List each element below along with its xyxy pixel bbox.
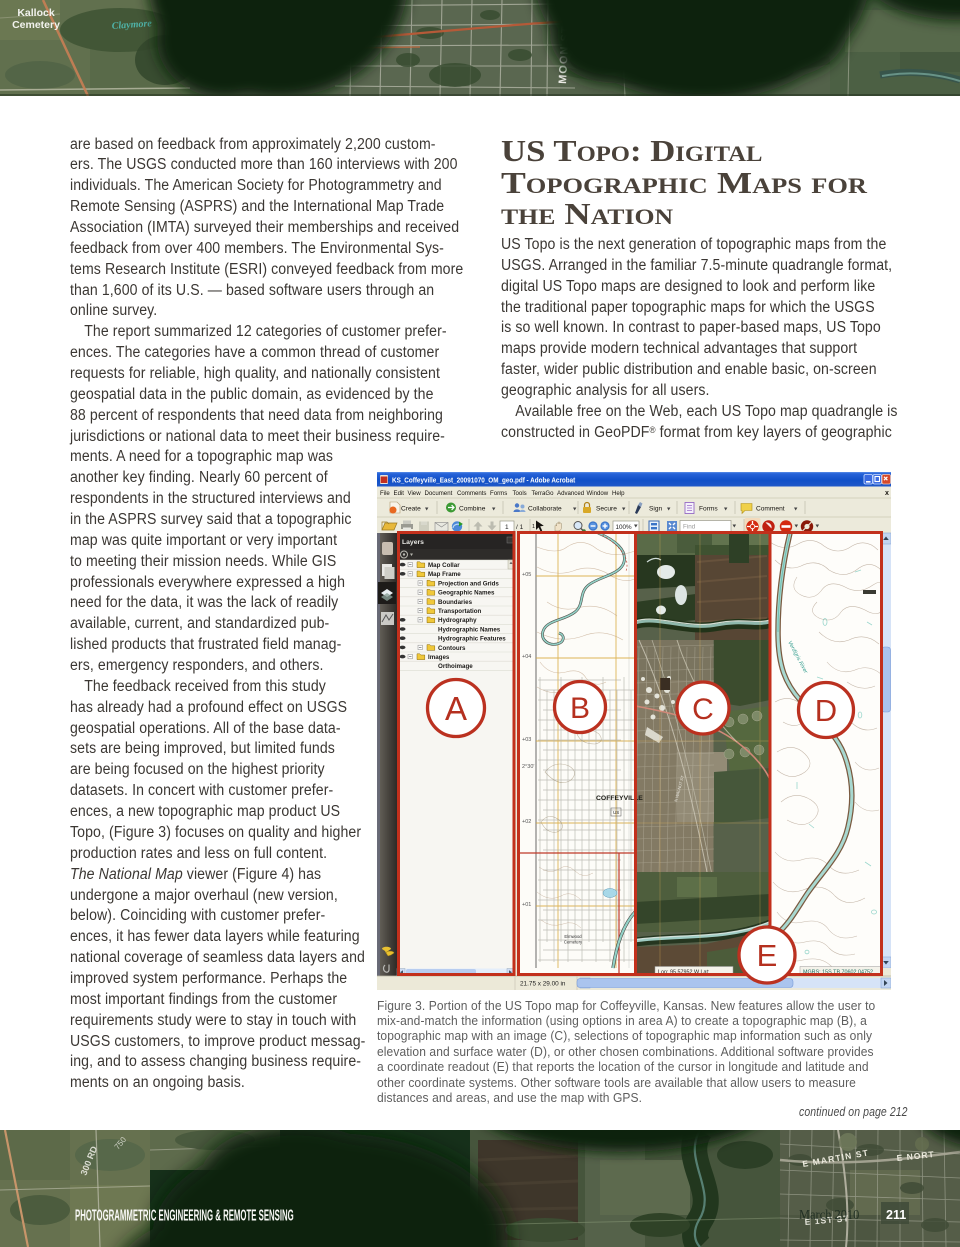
svg-text:Collaborate: Collaborate xyxy=(528,506,562,513)
svg-text:+04: +04 xyxy=(522,654,531,660)
svg-text:Kallock: Kallock xyxy=(17,7,55,19)
svg-text:View: View xyxy=(408,490,422,497)
svg-text:2°30': 2°30' xyxy=(522,764,534,770)
svg-text:211: 211 xyxy=(886,1208,906,1222)
svg-text:Images: Images xyxy=(428,654,450,661)
svg-text:+05: +05 xyxy=(522,572,531,578)
svg-text:Combine: Combine xyxy=(459,506,486,513)
svg-text:Orthoimage: Orthoimage xyxy=(438,663,473,670)
svg-text:A: A xyxy=(445,690,467,727)
svg-text:PHOTOGRAMMETRIC ENGINEERING &: PHOTOGRAMMETRIC ENGINEERING & REMOTE SEN… xyxy=(75,1207,294,1225)
svg-text:Boundaries: Boundaries xyxy=(438,599,473,606)
svg-text:Advanced: Advanced xyxy=(557,490,584,497)
svg-text:E: E xyxy=(757,938,778,973)
svg-text:Map Collar: Map Collar xyxy=(428,562,460,569)
svg-text:Map Frame: Map Frame xyxy=(428,571,461,578)
svg-text:D: D xyxy=(815,693,837,728)
svg-text:Elmwood: Elmwood xyxy=(564,934,582,939)
svg-text:Sign: Sign xyxy=(649,506,663,513)
svg-text:/ 1: / 1 xyxy=(516,524,524,531)
svg-text:Window: Window xyxy=(587,490,609,497)
svg-text:+01: +01 xyxy=(522,902,531,908)
svg-text:B: B xyxy=(570,692,590,725)
svg-text:File: File xyxy=(380,490,390,497)
svg-text:Secure: Secure xyxy=(596,506,617,513)
svg-text:Hydrography: Hydrography xyxy=(438,617,477,624)
svg-text:1: 1 xyxy=(532,524,535,530)
svg-text:+03: +03 xyxy=(522,737,531,743)
svg-text:Hydrographic Names: Hydrographic Names xyxy=(438,626,501,633)
svg-text:Layers: Layers xyxy=(402,539,424,546)
svg-text:21.75 x 29.00 in: 21.75 x 29.00 in xyxy=(520,981,566,988)
svg-text:Comment: Comment xyxy=(756,506,785,513)
svg-text:Help: Help xyxy=(612,490,625,497)
svg-text:Transportation: Transportation xyxy=(438,608,482,615)
svg-text:Document: Document xyxy=(425,490,453,497)
svg-text:+02: +02 xyxy=(522,819,531,825)
svg-text:x: x xyxy=(885,490,889,497)
svg-text:C: C xyxy=(692,693,714,726)
svg-text:March 2010: March 2010 xyxy=(799,1207,859,1223)
svg-text:Hydrographic Features: Hydrographic Features xyxy=(438,636,506,643)
svg-text:Contours: Contours xyxy=(438,645,466,652)
svg-text:Projection and Grids: Projection and Grids xyxy=(438,580,499,587)
svg-text:Create: Create xyxy=(401,506,421,513)
svg-text:TerraGo: TerraGo xyxy=(532,490,555,497)
svg-text:Cemetery: Cemetery xyxy=(564,940,583,945)
svg-text:US: US xyxy=(613,810,619,815)
svg-text:Edit: Edit xyxy=(394,490,405,497)
svg-text:KS_Coffeyville_East_20091070_O: KS_Coffeyville_East_20091070_OM_geo.pdf … xyxy=(392,477,576,484)
svg-text:Forms: Forms xyxy=(490,490,507,497)
svg-text:Find: Find xyxy=(683,524,696,531)
svg-text:Comments: Comments xyxy=(457,490,486,497)
svg-text:100%: 100% xyxy=(616,524,633,531)
svg-text:1: 1 xyxy=(505,524,509,531)
svg-text:Geographic Names: Geographic Names xyxy=(438,590,495,597)
svg-text:Tools: Tools xyxy=(513,490,527,497)
svg-text:Forms: Forms xyxy=(699,506,718,513)
svg-text:Cemetery: Cemetery xyxy=(12,19,60,31)
